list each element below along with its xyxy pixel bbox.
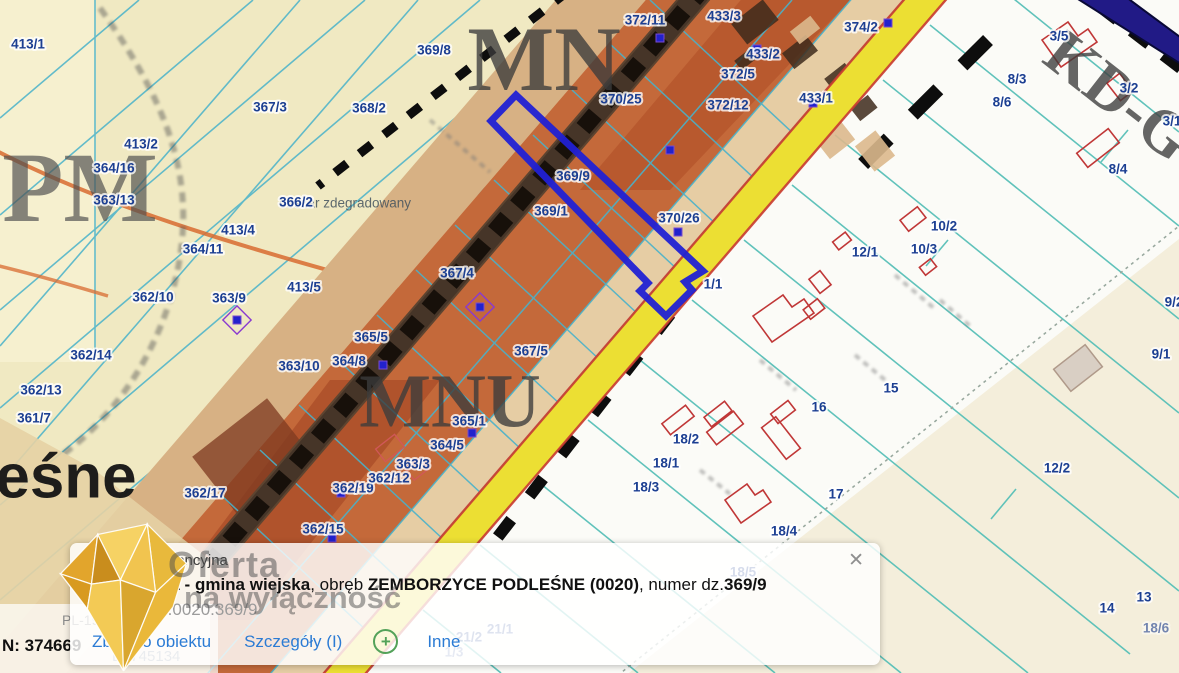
parcel-label: 364/5 [430, 438, 464, 453]
parcel-label: 363/3 [396, 457, 430, 472]
parcel-label: 14 [1099, 601, 1115, 616]
parcel-label: 364/8 [332, 354, 366, 369]
parcel-label: 9/1 [1152, 347, 1171, 362]
obreb-name: ZEMBORZYCE PODLEŚNE (0020) [368, 575, 639, 594]
parcel-label: 9/2 [1165, 295, 1179, 310]
parcel-label: 18/6 [1143, 621, 1170, 636]
parcel-label: 16 [811, 400, 827, 415]
parcel-description: Konopnica - gmina wiejska, obręb ZEMBORZ… [92, 575, 840, 595]
parcel-label: 3/2 [1120, 81, 1139, 96]
parcel-label: 413/1 [11, 37, 45, 52]
parcel-label: 362/12 [368, 471, 409, 486]
parcel-label: 17 [828, 487, 843, 502]
parcel-label: 13 [1136, 590, 1152, 605]
parcel-label: 3/1 [1163, 114, 1179, 129]
parcel-label: 413/4 [221, 223, 255, 238]
parcel-label: 362/10 [132, 290, 173, 305]
parcel-label: 8/4 [1109, 162, 1128, 177]
parcel-label: 367/4 [440, 266, 474, 281]
parcel-label: 433/3 [707, 9, 741, 24]
parcel-label: 366/2 [279, 195, 313, 210]
parcel-label: 10/3 [911, 242, 938, 257]
parcel-label: 365/1 [452, 414, 486, 429]
parcel-label: 362/15 [302, 522, 344, 537]
parcel-label: 363/10 [278, 359, 319, 374]
parcel-label: 370/25 [600, 92, 642, 107]
parcel-label: 8/6 [993, 95, 1012, 110]
gmina-name: Konopnica - gmina wiejska [92, 575, 310, 594]
parcel-label: 18/2 [673, 432, 699, 447]
parcel-label: 10/2 [931, 219, 957, 234]
parcel-label: 18/4 [771, 524, 798, 539]
parcel-label: 367/5 [514, 344, 548, 359]
parcel-label: 8/3 [1008, 72, 1027, 87]
place-name-fragment: eśne [0, 443, 137, 512]
zoom-to-object-link[interactable]: Zbliż do obiektu [92, 632, 211, 652]
parcel-label: 413/5 [287, 280, 321, 295]
parcel-info-popup: ✕ Działka ewidencyjna Konopnica - gmina … [70, 543, 880, 665]
parcel-label: 370/26 [658, 211, 700, 226]
parcel-label: 362/13 [20, 383, 62, 398]
parcel-label: 1/1 [704, 277, 723, 292]
parcel-label: 374/2 [844, 20, 878, 35]
parcel-label: 363/13 [93, 193, 135, 208]
parcel-label: 365/5 [354, 330, 388, 345]
parcel-label: 362/14 [70, 348, 112, 363]
parcel-label: 364/16 [93, 161, 135, 176]
parcel-label: 372/5 [721, 67, 755, 82]
add-plus-icon[interactable]: + [373, 629, 398, 654]
details-link[interactable]: Szczegóły (I) [244, 632, 342, 652]
map-viewport[interactable]: obszar zdegradowanyPMMNMNUKD-Geśne413/13… [0, 0, 1179, 673]
parcel-label: 3/5 [1050, 29, 1069, 44]
parcel-label: 18/3 [633, 480, 660, 495]
parcel-label: 372/12 [707, 98, 748, 113]
parcel-label: 12/1 [852, 245, 879, 260]
parcel-label: 15 [883, 381, 899, 396]
parcel-label: 363/9 [212, 291, 246, 306]
parcel-label: 372/11 [625, 13, 666, 28]
popup-title: Działka ewidencyjna [92, 552, 840, 569]
parcel-identifier: 060908_2.0020.369/9 [92, 600, 840, 620]
parcel-label: 364/11 [183, 242, 224, 257]
zone-label-mn: MN [467, 8, 620, 110]
parcel-label: 361/7 [17, 411, 51, 426]
parcel-label: 369/1 [534, 204, 568, 219]
parcel-label: 369/9 [556, 169, 590, 184]
parcel-label: 369/8 [417, 43, 451, 58]
parcel-label: 362/17 [184, 486, 225, 501]
parcel-label: 433/2 [746, 47, 780, 62]
parcel-label: 368/2 [352, 101, 386, 116]
parcel-label: 413/2 [124, 137, 158, 152]
parcel-label: 367/3 [253, 100, 287, 115]
zone-label-mnu: MNU [359, 360, 541, 444]
parcel-label: 18/1 [653, 456, 680, 471]
parcel-label: 12/2 [1044, 461, 1070, 476]
close-icon[interactable]: ✕ [848, 549, 864, 571]
other-link[interactable]: Inne [427, 632, 460, 652]
parcel-label: 433/1 [799, 91, 833, 106]
parcel-number: 369/9 [724, 575, 767, 594]
